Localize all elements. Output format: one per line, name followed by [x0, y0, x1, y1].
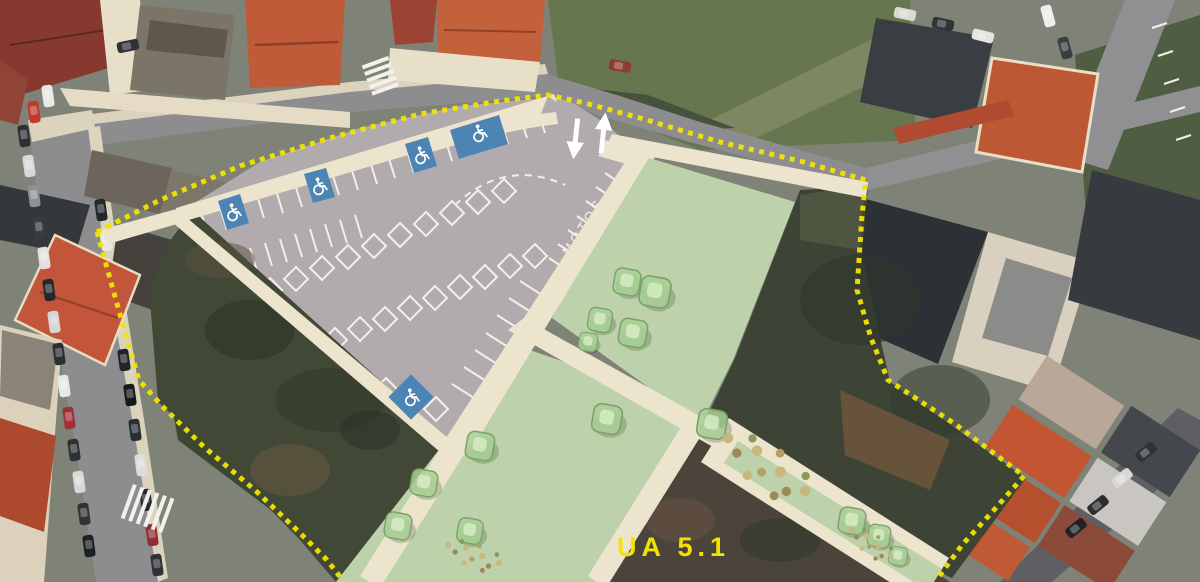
site-plan-map: MOTOS [0, 0, 1200, 582]
area-label: UA 5.1 [617, 532, 730, 562]
aerial-overlay-canvas: MOTOS [0, 0, 1200, 582]
